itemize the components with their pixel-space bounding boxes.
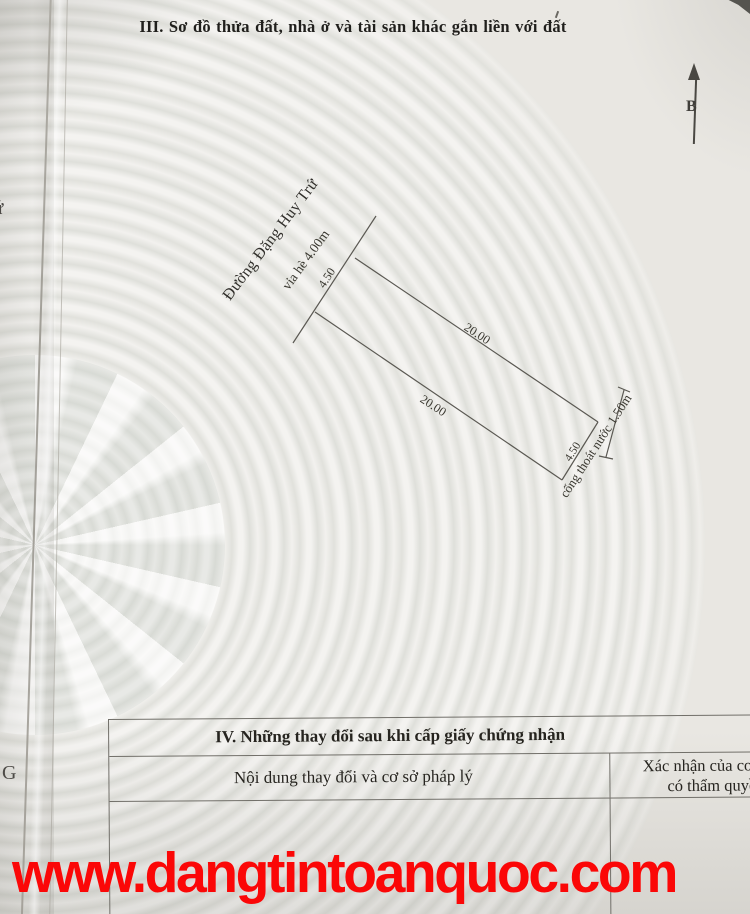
certificate-page: ứ G III. Sơ đồ thửa đất, nhà ở và tài sả… [0, 0, 750, 914]
confirm-column-header: Xác nhận của cơ quan có thẩm quyền [609, 752, 750, 797]
changes-table-header-row: Nội dung thay đổi và cơ sở pháp lý Xác n… [109, 752, 750, 802]
changes-table-title: IV. Những thay đổi sau khi cấp giấy chứn… [109, 715, 750, 757]
confirm-header-line1: Xác nhận của cơ quan [610, 755, 750, 776]
content-column-header: Nội dung thay đổi và cơ sở pháp lý [109, 754, 609, 801]
confirm-header-line2: có thẩm quyền [610, 775, 750, 796]
watermark-url-text: www.dangtintoanquoc.com [12, 845, 676, 902]
plot-side-bottom-line [315, 312, 562, 480]
